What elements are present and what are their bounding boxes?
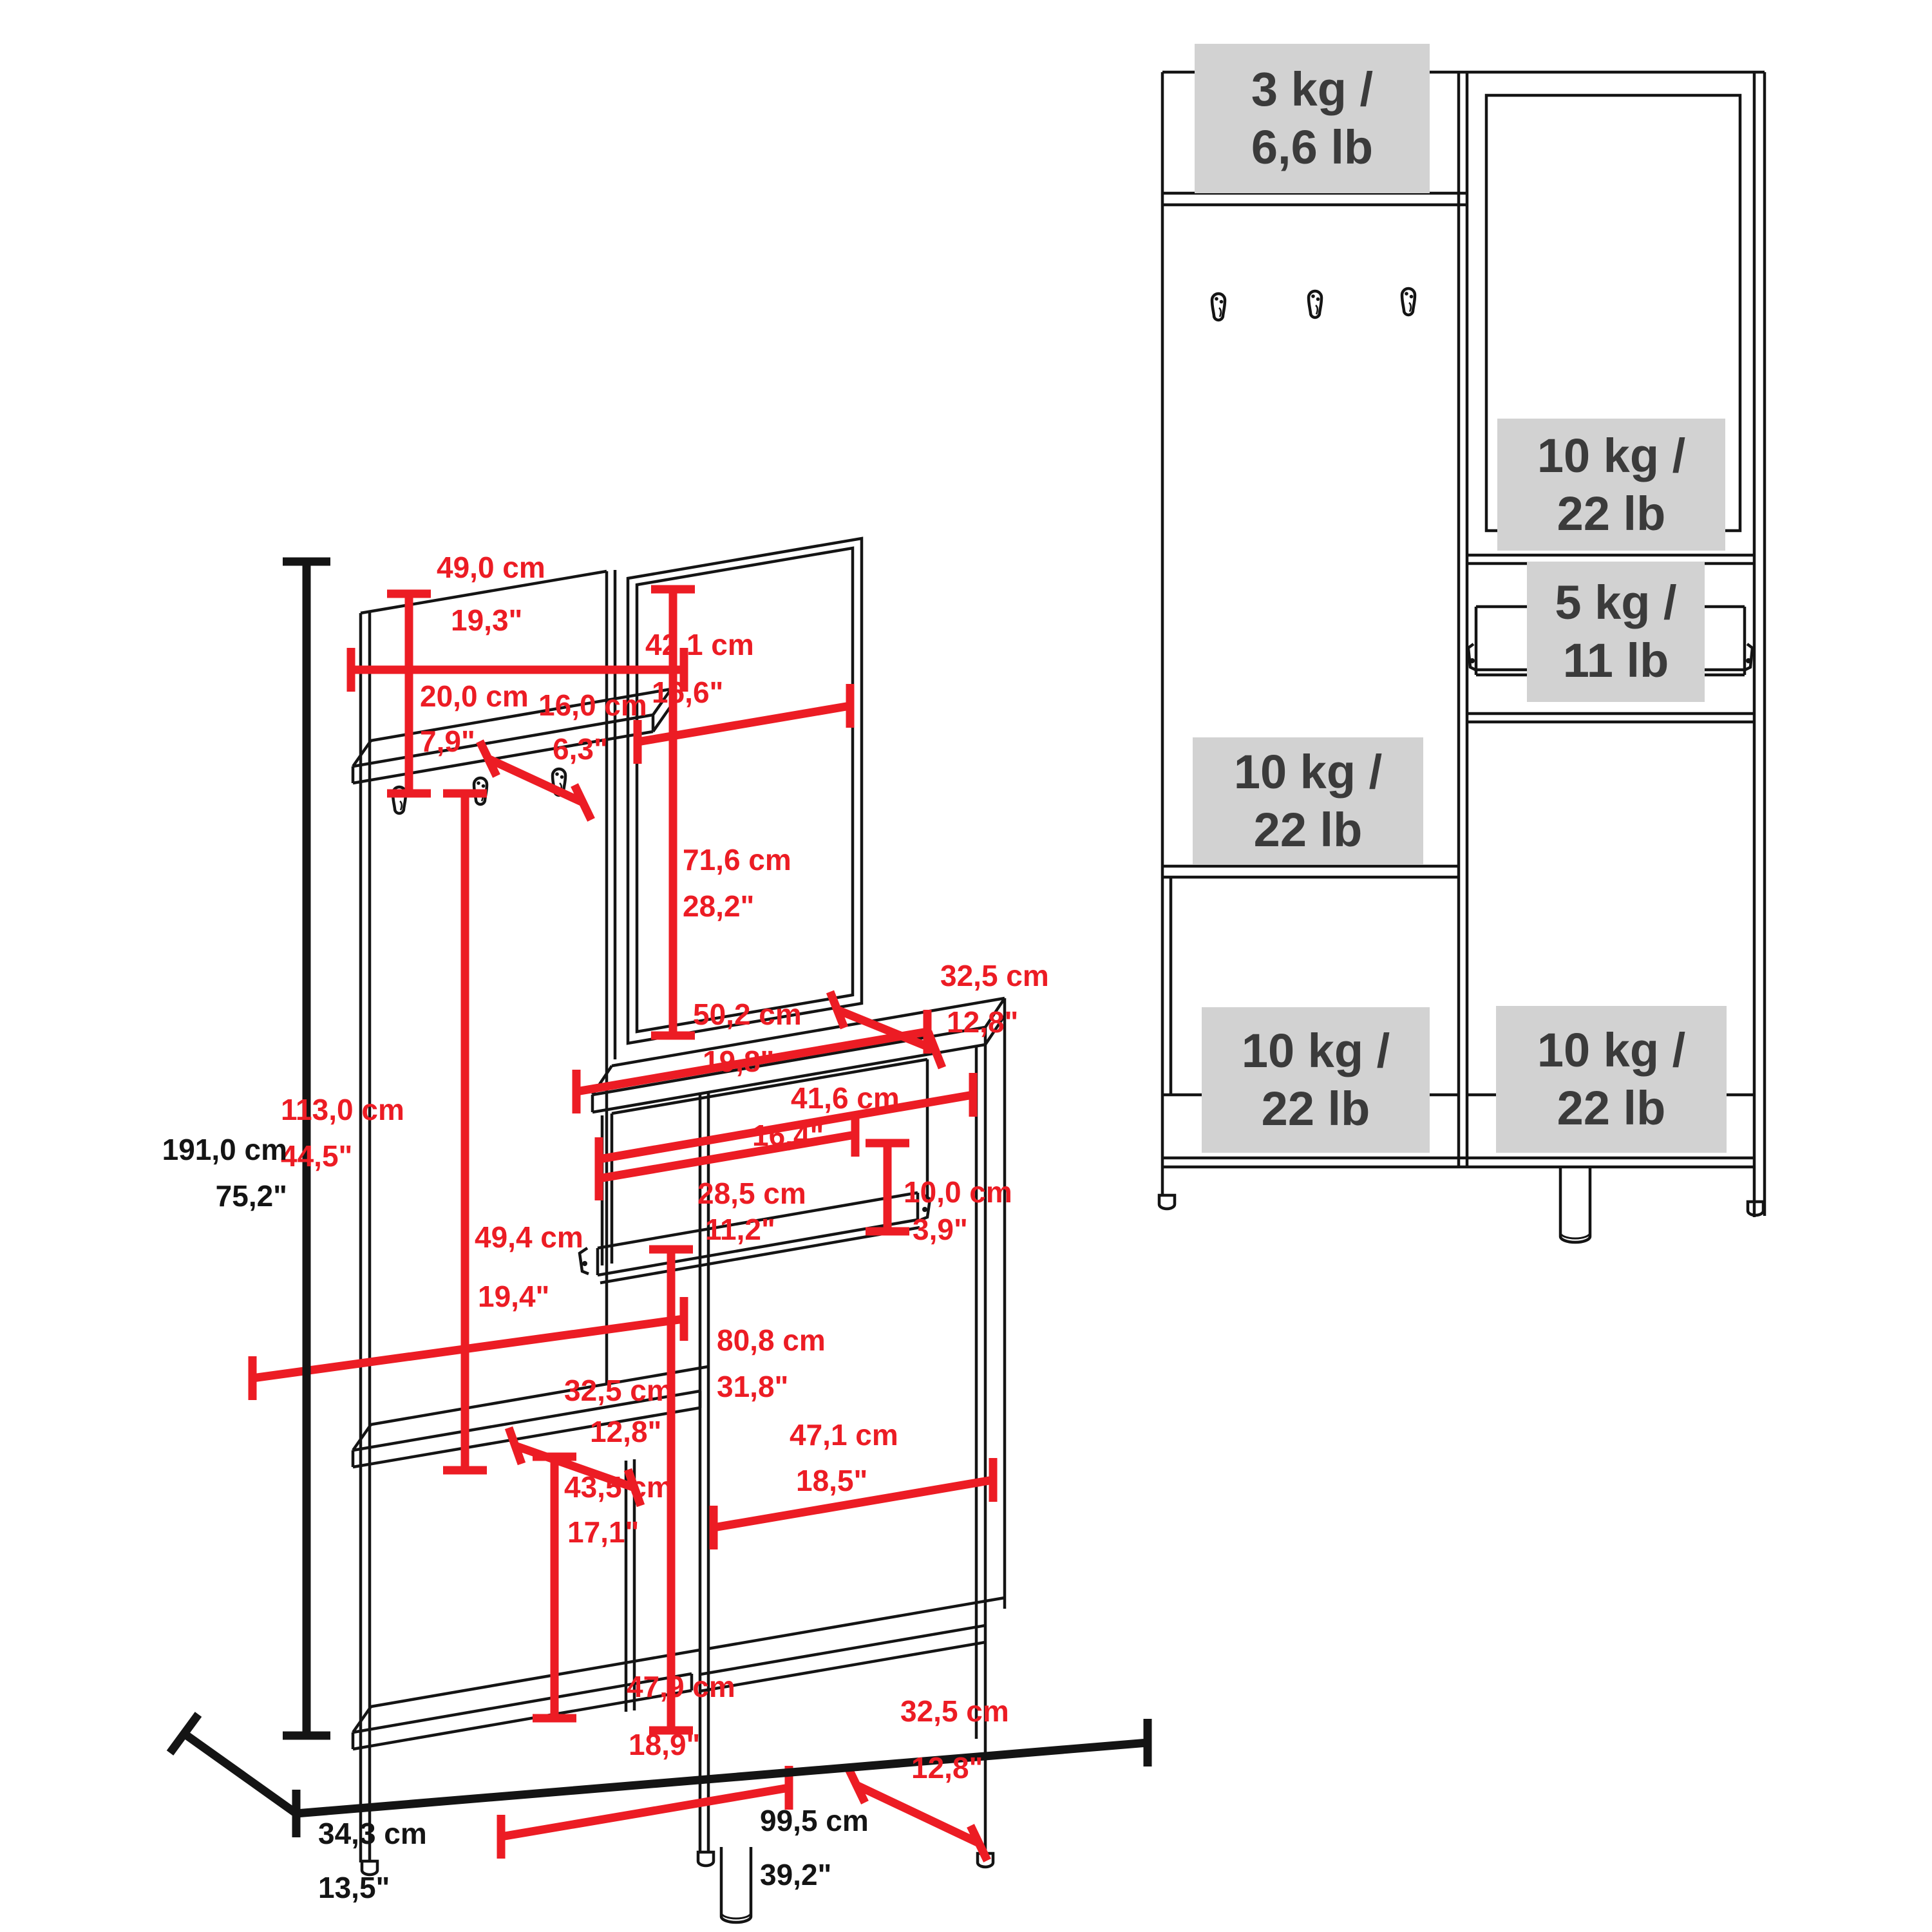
dim-drawer-width-in: 11,2" [705, 1213, 775, 1246]
dim-drawer-height-cm: 10,0 cm [904, 1176, 1012, 1209]
dim-overall-height-in: 75,2" [94, 1180, 287, 1213]
dim-mirror-height-cm: 71,6 cm [683, 844, 791, 876]
dim-cabinet-top-width-cm: 50,2 cm [693, 998, 802, 1031]
dim-cabinet-top-depth-in: 12,8" [947, 1006, 1018, 1039]
dim-lower-left-width-in: 18,9" [629, 1728, 700, 1761]
dim-overall-height-cm: 191,0 cm [94, 1133, 287, 1166]
dim-shelf-drop-cm: 20,0 cm [420, 680, 529, 713]
dim-overall-width-cm: 99,5 cm [760, 1804, 869, 1837]
dim-lower-cavity-height-cm: 80,8 cm [717, 1324, 826, 1357]
dim-shelf-depth-cm: 16,0 cm [538, 689, 647, 722]
dim-drawer-opening-width-cm: 41,6 cm [791, 1082, 900, 1115]
dim-lower-left-width-cm: 47,9 cm [627, 1671, 735, 1703]
dim-bottom-depth-in: 12,8" [911, 1752, 983, 1785]
dim-cabinet-top-width-in: 19,8" [703, 1045, 774, 1078]
dim-left-inner-width-in: 19,4" [478, 1280, 549, 1313]
dim-mirror-width-cm: 42,1 cm [645, 629, 754, 661]
dim-lower-cavity-height-in: 31,8" [717, 1370, 788, 1403]
dim-bottom-depth-cm: 32,5 cm [900, 1695, 1009, 1728]
dim-drawer-opening-width-in: 16,4" [752, 1119, 824, 1152]
dim-drawer-width-cm: 28,5 cm [697, 1177, 806, 1210]
dim-shelf-width-in: 19,3" [451, 604, 522, 637]
dim-bench-depth-in: 12,8" [590, 1416, 661, 1448]
dim-mirror-width-in: 16,6" [652, 676, 723, 709]
dim-drawer-height-in: 3,9" [913, 1213, 968, 1246]
dim-panel-height-cm: 113,0 cm [281, 1094, 404, 1126]
dim-shelf-depth-in: 6,3" [553, 733, 608, 766]
dim-panel-height-in: 44,5" [281, 1140, 352, 1173]
dim-bench-height-in: 17,1" [567, 1516, 639, 1549]
dim-overall-depth-cm: 34,3 cm [318, 1817, 427, 1850]
dim-cabinet-top-depth-cm: 32,5 cm [940, 960, 1049, 992]
dim-overall-depth-in: 13,5" [318, 1871, 390, 1904]
dim-shelf-width-cm: 49,0 cm [437, 551, 545, 584]
furniture-dimension-diagram: 3 kg / 6,6 lb 10 kg / 22 lb 5 kg / 11 lb… [0, 0, 1932, 1932]
red-dimension-lines [252, 589, 993, 1861]
dim-bench-height-cm: 43,5 cm [564, 1471, 673, 1504]
dim-lower-right-width-cm: 47,1 cm [790, 1419, 898, 1452]
dim-shelf-drop-in: 7,9" [420, 725, 475, 758]
dim-mirror-height-in: 28,2" [683, 890, 754, 923]
dim-overall-width-in: 39,2" [760, 1859, 831, 1891]
dim-left-inner-width-cm: 49,4 cm [475, 1221, 583, 1254]
dim-lower-right-width-in: 18,5" [796, 1464, 867, 1497]
dim-bench-depth-cm: 32,5 cm [564, 1374, 673, 1407]
